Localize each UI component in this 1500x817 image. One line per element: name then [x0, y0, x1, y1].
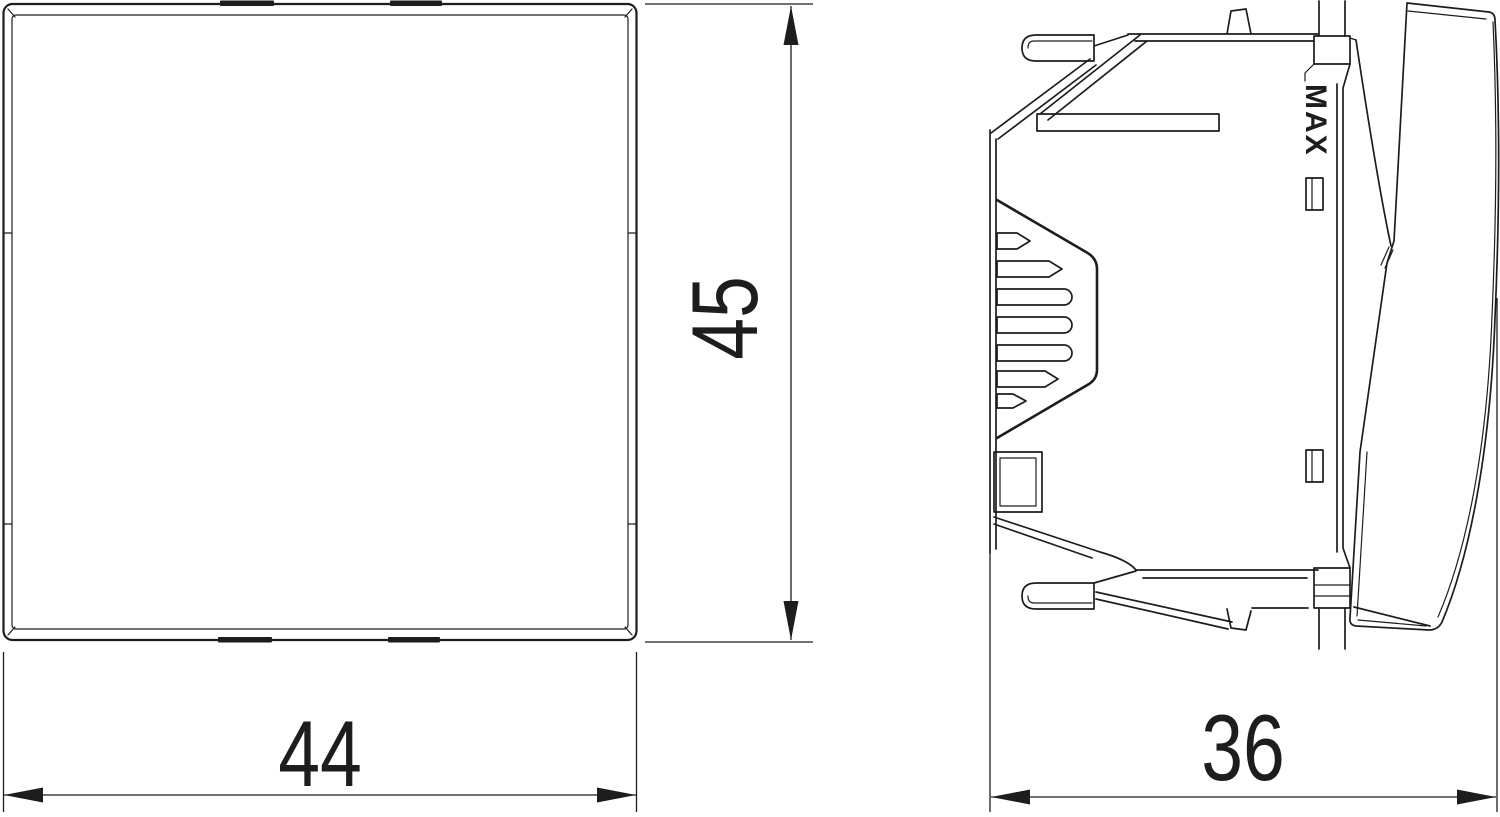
retainer-slot-bar [1037, 114, 1219, 131]
grille-slat [997, 394, 1026, 408]
bottom-clip-frame [994, 452, 1042, 512]
paddle-edge-inner-lines [1357, 452, 1426, 626]
corner-chamfer-lines [8, 9, 632, 635]
clip-window [1306, 450, 1323, 482]
bottom-mounting-clip [994, 517, 1232, 629]
post-leg [1319, 608, 1345, 649]
post-leg [1319, 1, 1345, 36]
rocker-paddle [1350, 3, 1499, 630]
technical-drawing: 44 45 [0, 0, 1500, 817]
clip-strut [1096, 592, 1232, 629]
clip-frame-inner [1000, 458, 1036, 506]
top-latch-tab [220, 1, 274, 7]
grille-slat [997, 317, 1072, 333]
body-bottom-edge [1136, 570, 1318, 608]
bottom-edge-lug [1227, 609, 1251, 630]
rocker-outer-frame [4, 4, 637, 640]
edge-tick-marks [4, 233, 637, 524]
paddle-outline [1350, 3, 1499, 630]
grille-slat [997, 371, 1058, 387]
bottom-latch-tab [218, 637, 272, 643]
dimension-height-label: 45 [673, 276, 778, 360]
post-block [1314, 36, 1350, 64]
clip-window-upper [1306, 178, 1323, 210]
body-front-edge [1337, 64, 1350, 568]
clip-window [1306, 178, 1323, 210]
post-divider-lines [1314, 585, 1350, 596]
arrowhead-right [1457, 790, 1496, 805]
top-mounting-clip [991, 35, 1219, 139]
vent-grille [997, 200, 1097, 438]
grille-slat [997, 233, 1030, 249]
top-latch-tab [390, 1, 442, 7]
body-back-edge [990, 130, 996, 553]
grille-slat [997, 261, 1062, 277]
arrowhead-left [991, 790, 1030, 805]
bottom-latch-tab [388, 637, 440, 643]
side-view: MAX [990, 1, 1499, 649]
clip-strut [991, 59, 1096, 139]
paddle-top-inner-line [1408, 11, 1486, 19]
rocker-inner-face [12, 15, 628, 629]
grille-slat [997, 345, 1072, 361]
grille-slat [997, 289, 1072, 305]
front-view [4, 1, 637, 643]
body-top-edge [1128, 34, 1318, 41]
arrowhead-right [597, 788, 636, 803]
clip-window-lower [1306, 450, 1323, 482]
clip-strut [1094, 571, 1136, 583]
pivot-post-bottom [1314, 568, 1350, 649]
dimension-depth-36: 36 [990, 298, 1497, 812]
clip-finger-inner-line [1028, 41, 1092, 48]
technical-drawing-page: 44 45 [0, 0, 1500, 817]
clip-finger [1022, 583, 1094, 609]
clip-finger-inner-line [1028, 596, 1092, 603]
paddle-front-inner-line [1438, 22, 1496, 617]
arrowhead-left [4, 788, 43, 803]
post-step [1305, 64, 1314, 81]
post-block [1314, 568, 1350, 608]
top-edge-lug [1227, 9, 1251, 34]
dimension-height-45: 45 [645, 4, 813, 642]
clip-finger [1022, 35, 1094, 61]
clip-frame-outer [994, 452, 1042, 512]
dimension-width-44: 44 [4, 652, 637, 812]
clip-strut [994, 517, 1136, 570]
paddle-pivot-joint [1350, 38, 1356, 40]
dimension-width-label: 44 [278, 702, 362, 807]
arrowhead-top [784, 6, 799, 45]
grille-outline [997, 200, 1097, 438]
dimension-depth-label: 36 [1201, 696, 1285, 801]
arrowhead-bottom [784, 601, 799, 640]
max-label: MAX [1299, 84, 1332, 157]
paddle-side-silhouette-top [1356, 40, 1391, 246]
clip-strut [1094, 35, 1128, 46]
